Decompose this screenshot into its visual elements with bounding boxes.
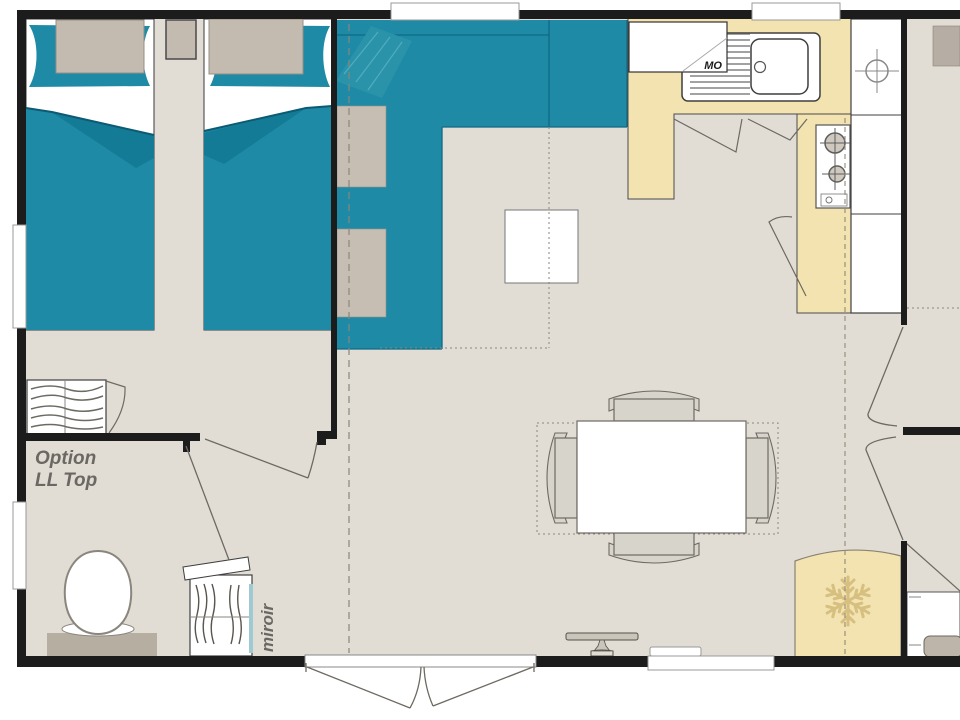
svg-text:MO: MO <box>704 60 722 72</box>
svg-text:miroir: miroir <box>258 602 277 652</box>
svg-text:Option: Option <box>35 448 96 469</box>
svg-text:LL Top: LL Top <box>35 470 97 491</box>
